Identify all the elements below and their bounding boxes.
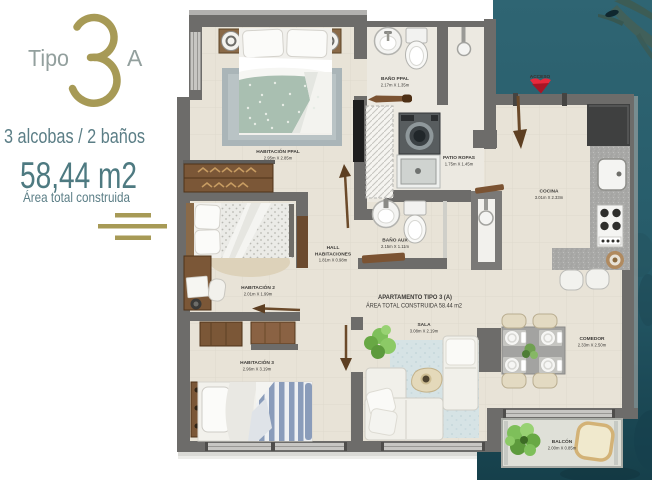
svg-text:A: A xyxy=(127,45,143,71)
svg-text:APARTAMENTO TIPO 3 (A): APARTAMENTO TIPO 3 (A) xyxy=(378,294,452,301)
svg-text:2.15m X 1.11m: 2.15m X 1.11m xyxy=(381,244,410,249)
svg-text:3.08m X 2.19m: 3.08m X 2.19m xyxy=(410,329,439,334)
svg-text:HALL: HALL xyxy=(327,245,340,251)
svg-text:2.96m X 3.19m: 2.96m X 3.19m xyxy=(243,367,272,372)
svg-text:Área total construida: Área total construida xyxy=(23,189,130,205)
svg-text:1.81m X 0.98m: 1.81m X 0.98m xyxy=(319,258,348,263)
svg-text:ÁREA TOTAL CONSTRUIDA 58.44 m2: ÁREA TOTAL CONSTRUIDA 58.44 m2 xyxy=(366,303,462,310)
svg-text:BAÑO PPAL: BAÑO PPAL xyxy=(381,75,409,82)
svg-text:COCINA: COCINA xyxy=(540,189,559,195)
svg-text:2.95m X 2.85m: 2.95m X 2.85m xyxy=(264,156,293,161)
svg-text:Tipo: Tipo xyxy=(28,45,69,71)
svg-text:PATIO ROPAS: PATIO ROPAS xyxy=(443,155,476,161)
svg-text:1.75m X 1.45m: 1.75m X 1.45m xyxy=(445,162,474,167)
svg-text:2.01m X 1.99m: 2.01m X 1.99m xyxy=(244,292,273,297)
svg-text:2.17m X 1.35m: 2.17m X 1.35m xyxy=(381,83,410,88)
svg-text:SALA: SALA xyxy=(417,322,431,328)
svg-text:ACCESO: ACCESO xyxy=(530,74,551,80)
svg-text:3.01m X 2.33m: 3.01m X 2.33m xyxy=(535,195,564,200)
svg-text:COMEDOR: COMEDOR xyxy=(579,336,605,342)
svg-text:BAÑO AUX: BAÑO AUX xyxy=(382,237,408,244)
svg-text:2.33m X 2.50m: 2.33m X 2.50m xyxy=(578,343,607,348)
svg-text:3 alcobas / 2 baños: 3 alcobas / 2 baños xyxy=(4,126,145,148)
svg-text:2.00m X 0.85m: 2.00m X 0.85m xyxy=(548,446,577,451)
